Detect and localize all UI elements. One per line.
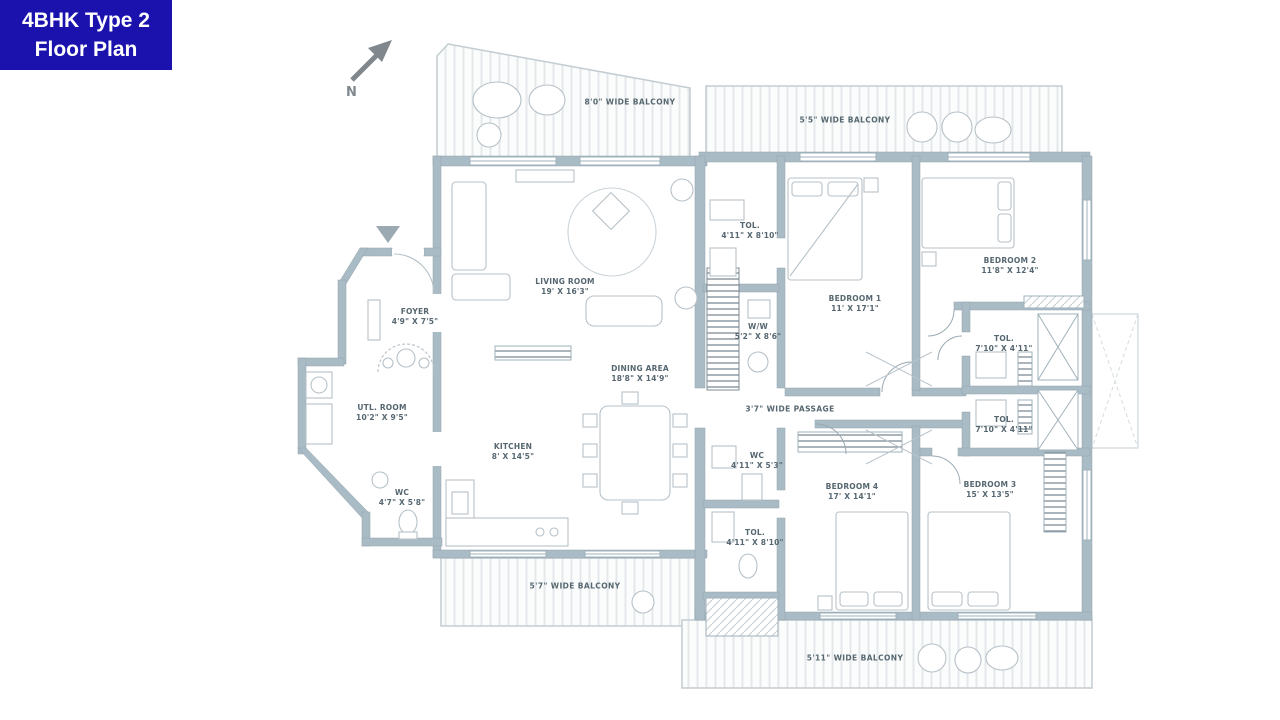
room-label-living: LIVING ROOM 19' X 16'3" bbox=[535, 277, 594, 297]
room-label-foyer: FOYER 4'9" X 7'5" bbox=[392, 307, 439, 327]
room-dims: 19' X 16'3" bbox=[535, 287, 594, 297]
room-label-dining: DINING AREA 18'8" X 14'9" bbox=[611, 364, 669, 384]
room-name: BEDROOM 1 bbox=[829, 294, 882, 304]
badge-line-2: Floor Plan bbox=[0, 35, 172, 64]
floor-plan-page: N 4BHK Type 2 Floor Plan LIVING ROOM 19'… bbox=[0, 0, 1280, 720]
room-name: TOL. bbox=[975, 415, 1032, 425]
room-label-util: UTL. ROOM 10'2" X 9'5" bbox=[356, 403, 408, 423]
room-dims: 17' X 14'1" bbox=[826, 492, 879, 502]
room-label-bedroom3: BEDROOM 3 15' X 13'5" bbox=[964, 480, 1017, 500]
room-dims: 10'2" X 9'5" bbox=[356, 413, 408, 423]
room-label-tol-right-top: TOL. 7'10" X 4'11" bbox=[975, 334, 1032, 354]
entry-marker-icon bbox=[376, 226, 400, 243]
room-name: BEDROOM 3 bbox=[964, 480, 1017, 490]
balcony-label-bottom-left: 5'7" WIDE BALCONY bbox=[530, 582, 621, 591]
room-label-kitchen: KITCHEN 8' X 14'5" bbox=[492, 442, 534, 462]
room-name: WC bbox=[379, 488, 426, 498]
north-label: N bbox=[346, 85, 357, 100]
room-name: BEDROOM 4 bbox=[826, 482, 879, 492]
room-dims: 5'2" X 8'6" bbox=[735, 332, 782, 342]
room-name: KITCHEN bbox=[492, 442, 534, 452]
room-name: W/W bbox=[735, 322, 782, 332]
room-dims: 11'8" X 12'4" bbox=[981, 266, 1038, 276]
room-name: TOL. bbox=[726, 528, 783, 538]
balcony-label-top-right: 5'5" WIDE BALCONY bbox=[800, 116, 891, 125]
passage-label: 3'7" WIDE PASSAGE bbox=[745, 405, 834, 414]
room-dims: 4'7" X 5'8" bbox=[379, 498, 426, 508]
room-dims: 4'11" X 5'3" bbox=[731, 461, 783, 471]
room-label-bedroom4: BEDROOM 4 17' X 14'1" bbox=[826, 482, 879, 502]
room-dims: 8' X 14'5" bbox=[492, 452, 534, 462]
title-badge: 4BHK Type 2 Floor Plan bbox=[0, 0, 172, 70]
room-label-tol-top: TOL. 4'11" X 8'10" bbox=[721, 221, 778, 241]
refuge-deck bbox=[1092, 314, 1138, 448]
floor-plan-drawing: N bbox=[0, 0, 1280, 720]
room-dims: 4'11" X 8'10" bbox=[726, 538, 783, 548]
north-arrow-icon: N bbox=[346, 40, 392, 100]
room-dims: 4'11" X 8'10" bbox=[721, 231, 778, 241]
room-label-bedroom2: BEDROOM 2 11'8" X 12'4" bbox=[981, 256, 1038, 276]
room-label-tol-bottom: TOL. 4'11" X 8'10" bbox=[726, 528, 783, 548]
room-name: LIVING ROOM bbox=[535, 277, 594, 287]
room-name: UTL. ROOM bbox=[356, 403, 408, 413]
room-dims: 11' X 17'1" bbox=[829, 304, 882, 314]
room-name: FOYER bbox=[392, 307, 439, 317]
balcony-label-top-left: 8'0" WIDE BALCONY bbox=[585, 98, 676, 107]
room-dims: 18'8" X 14'9" bbox=[611, 374, 669, 384]
room-name: TOL. bbox=[721, 221, 778, 231]
room-name: TOL. bbox=[975, 334, 1032, 344]
room-name: WC bbox=[731, 451, 783, 461]
room-dims: 7'10" X 4'11" bbox=[975, 425, 1032, 435]
room-name: DINING AREA bbox=[611, 364, 669, 374]
room-label-bedroom1: BEDROOM 1 11' X 17'1" bbox=[829, 294, 882, 314]
room-label-wc-left: WC 4'7" X 5'8" bbox=[379, 488, 426, 508]
room-name: BEDROOM 2 bbox=[981, 256, 1038, 266]
room-dims: 15' X 13'5" bbox=[964, 490, 1017, 500]
room-dims: 4'9" X 7'5" bbox=[392, 317, 439, 327]
badge-line-1: 4BHK Type 2 bbox=[0, 6, 172, 35]
room-label-tol-right-bottom: TOL. 7'10" X 4'11" bbox=[975, 415, 1032, 435]
room-label-wc-mid: WC 4'11" X 5'3" bbox=[731, 451, 783, 471]
room-label-ww: W/W 5'2" X 8'6" bbox=[735, 322, 782, 342]
balcony-label-bottom-right: 5'11" WIDE BALCONY bbox=[807, 654, 904, 663]
room-dims: 7'10" X 4'11" bbox=[975, 344, 1032, 354]
